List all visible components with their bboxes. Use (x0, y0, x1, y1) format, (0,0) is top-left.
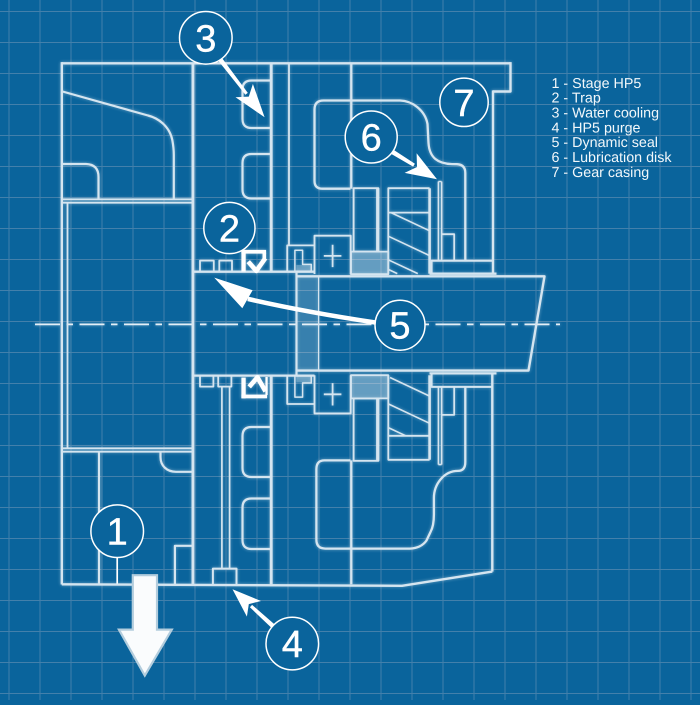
svg-text:5 - Dynamic seal: 5 - Dynamic seal (552, 135, 658, 151)
svg-text:3: 3 (195, 18, 216, 60)
svg-text:6: 6 (361, 118, 382, 160)
svg-text:6 - Lubrication disk: 6 - Lubrication disk (552, 150, 673, 166)
svg-text:4 - HP5 purge: 4 - HP5 purge (552, 120, 641, 136)
svg-text:5: 5 (389, 306, 410, 348)
svg-text:1 - Stage HP5: 1 - Stage HP5 (552, 76, 642, 92)
svg-text:4: 4 (282, 624, 303, 666)
svg-text:7 - Gear casing: 7 - Gear casing (552, 165, 650, 181)
svg-text:2: 2 (219, 209, 240, 251)
svg-text:2 - Trap: 2 - Trap (552, 91, 601, 107)
svg-text:1: 1 (107, 512, 128, 554)
svg-text:3 - Water cooling: 3 - Water cooling (552, 106, 660, 122)
svg-text:7: 7 (453, 83, 474, 125)
